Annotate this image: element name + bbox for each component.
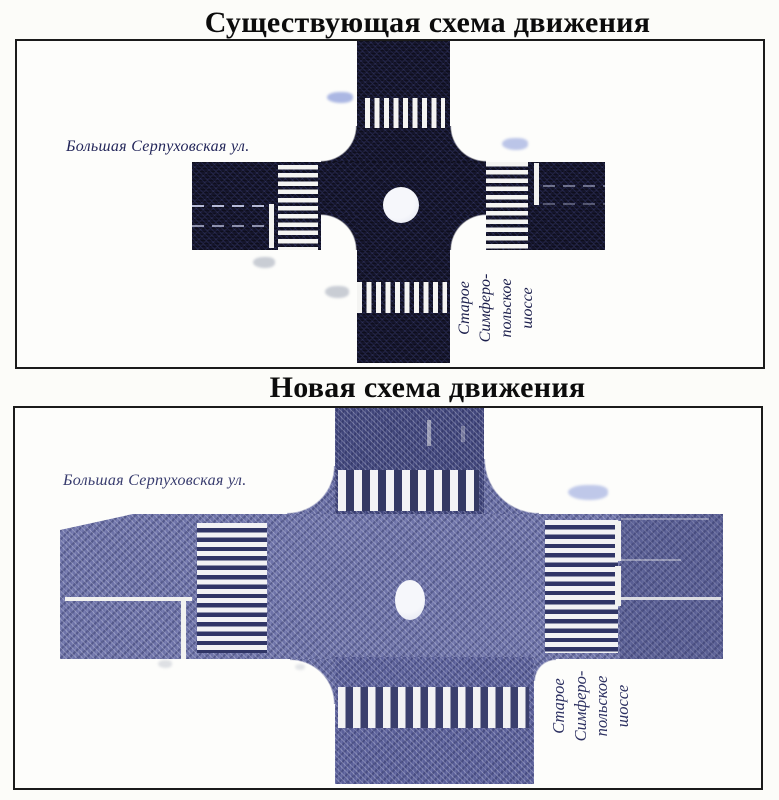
existing-scheme-diagram-frame: Большая Серпуховская ул. Старое Симферо-… bbox=[15, 39, 765, 369]
crosswalk-bottom bbox=[338, 687, 529, 728]
ink-smudge bbox=[325, 286, 349, 298]
lane-marking bbox=[427, 420, 431, 446]
new-scheme-title: Новая схема движения bbox=[0, 371, 779, 405]
crosswalk-left bbox=[197, 523, 267, 653]
ink-smudge bbox=[568, 485, 608, 500]
flare-corner bbox=[450, 214, 486, 250]
highway-label-line: польское bbox=[591, 671, 612, 742]
crosswalk-right bbox=[545, 520, 618, 653]
flare-corner bbox=[321, 214, 357, 250]
highway-label-line: шоссе bbox=[612, 671, 633, 742]
lane-marking bbox=[543, 203, 605, 205]
lane-divider-left bbox=[65, 597, 192, 601]
crosswalk-left bbox=[278, 165, 318, 250]
road-shading bbox=[620, 514, 723, 659]
flare-corner bbox=[450, 126, 486, 162]
ink-smudge bbox=[158, 660, 172, 668]
flare-corner bbox=[484, 459, 539, 514]
lane-divider-right bbox=[621, 597, 721, 600]
ink-smudge bbox=[295, 664, 305, 670]
lane-marking bbox=[621, 518, 709, 520]
scanned-traffic-scheme-page: Существующая схема движения Большая Серп… bbox=[0, 0, 779, 800]
flare-corner bbox=[321, 126, 357, 162]
highway-label-line: Старое bbox=[455, 274, 476, 343]
stop-line-right-lower bbox=[615, 566, 621, 606]
highway-label-line: польское bbox=[497, 274, 518, 343]
stop-line-right bbox=[534, 163, 539, 205]
lane-marking bbox=[543, 185, 605, 187]
street-label: Большая Серпуховская ул. bbox=[66, 138, 250, 156]
crosswalk-top bbox=[365, 98, 445, 128]
street-label: Большая Серпуховская ул. bbox=[63, 472, 247, 490]
highway-label: Старое Симферо- польское шоссе bbox=[453, 256, 541, 360]
ink-smudge bbox=[502, 138, 528, 150]
center-island bbox=[395, 580, 425, 620]
highway-label-line: шоссе bbox=[518, 274, 539, 343]
highway-label-line: Старое bbox=[548, 671, 569, 742]
crosswalk-top bbox=[338, 470, 479, 511]
center-island bbox=[383, 187, 419, 223]
highway-label: Старое Симферо- польское шоссе bbox=[547, 654, 635, 758]
existing-scheme-title: Существующая схема движения bbox=[0, 6, 779, 40]
ink-smudge bbox=[253, 257, 275, 268]
flare-corner bbox=[287, 466, 335, 514]
lane-marking bbox=[192, 225, 270, 227]
highway-label-line: Симферо- bbox=[570, 671, 591, 742]
lane-marking bbox=[461, 426, 465, 442]
new-scheme-diagram-frame: Большая Серпуховская ул. Старое Симферо-… bbox=[13, 406, 763, 790]
lane-marking bbox=[192, 205, 270, 207]
crosswalk-right bbox=[486, 162, 528, 250]
stop-line-left bbox=[181, 601, 186, 659]
stop-line-right-upper bbox=[615, 521, 621, 561]
highway-label-line: Симферо- bbox=[476, 274, 497, 343]
lane-marking bbox=[621, 559, 681, 561]
crosswalk-bottom bbox=[357, 282, 447, 313]
ink-smudge bbox=[327, 92, 353, 103]
